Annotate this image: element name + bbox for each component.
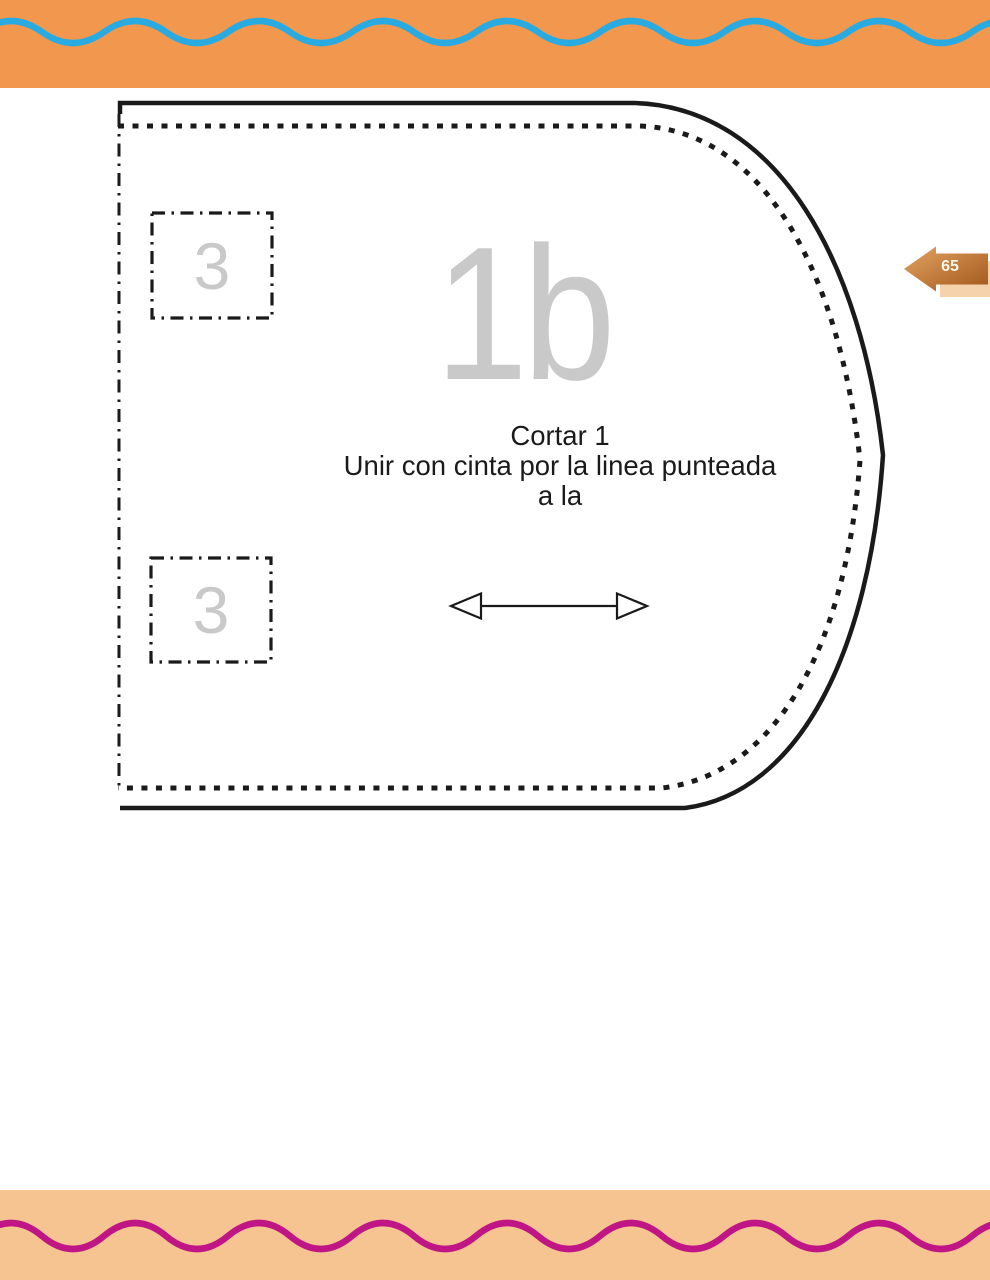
footer-wave-line bbox=[0, 1223, 990, 1249]
grainline-left-head-icon bbox=[451, 594, 481, 619]
notch-number-1-label: 3 bbox=[194, 233, 231, 299]
notch-number-2: 3 bbox=[151, 558, 271, 662]
instructions-line-2: Unir con cinta por la linea punteada bbox=[235, 451, 885, 481]
page-marker-tab[interactable]: 65 bbox=[900, 240, 990, 300]
notch-number-1: 3 bbox=[152, 213, 272, 318]
pattern-diagram bbox=[0, 0, 990, 1280]
instructions-line-1: Cortar 1 bbox=[235, 421, 885, 451]
instructions-line-3: a la bbox=[235, 481, 885, 511]
page-number: 65 bbox=[936, 254, 964, 280]
footer-wave-icon bbox=[0, 1190, 990, 1280]
grainline-arrow-icon bbox=[451, 594, 647, 619]
pattern-piece-label: 1b bbox=[435, 219, 610, 409]
grainline-right-head-icon bbox=[617, 594, 647, 619]
pattern-instructions: Cortar 1 Unir con cinta por la linea pun… bbox=[235, 421, 885, 511]
footer-band bbox=[0, 1190, 990, 1280]
notch-number-2-label: 3 bbox=[193, 577, 230, 643]
